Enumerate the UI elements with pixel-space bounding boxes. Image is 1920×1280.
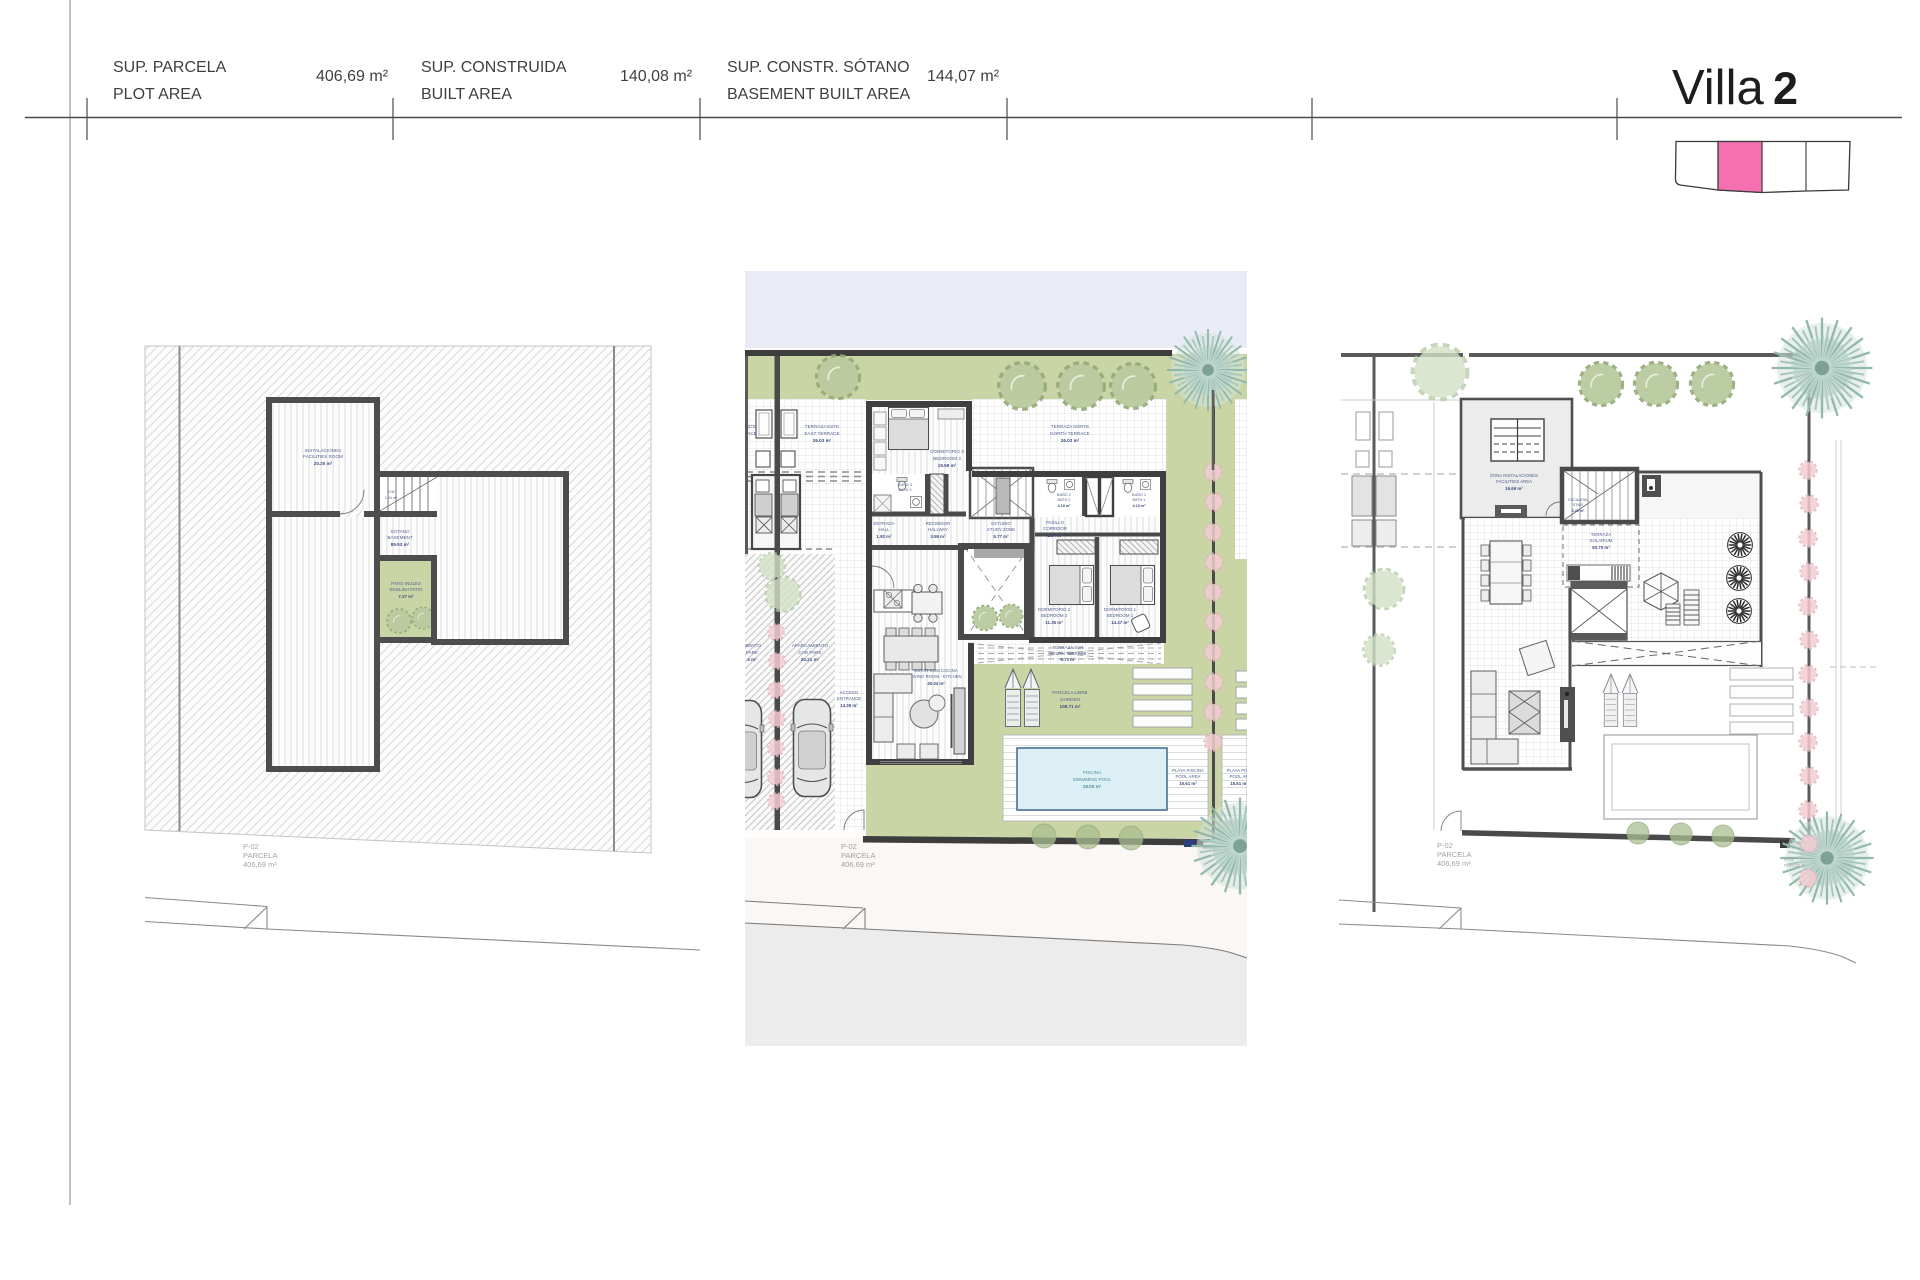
svg-text:ESCALERA: ESCALERA xyxy=(1568,498,1588,502)
svg-text:PATIO INGLES: PATIO INGLES xyxy=(391,581,421,586)
svg-text:DORMITORIO 1: DORMITORIO 1 xyxy=(1104,607,1137,612)
svg-text:P-02: P-02 xyxy=(243,842,259,851)
svg-text:11.35 m²: 11.35 m² xyxy=(1045,620,1063,625)
svg-text:Villa: Villa xyxy=(1672,61,1764,115)
svg-text:15.61 m²: 15.61 m² xyxy=(1179,781,1197,786)
svg-text:20.21 m²: 20.21 m² xyxy=(801,657,820,662)
svg-text:26.03 m²: 26.03 m² xyxy=(813,438,832,443)
svg-text:BEDROOM 2: BEDROOM 2 xyxy=(1041,613,1068,618)
svg-text:SUP. PARCELA: SUP. PARCELA xyxy=(113,59,227,76)
svg-text:ENTRADA: ENTRADA xyxy=(874,521,895,526)
svg-text:1.92 m²: 1.92 m² xyxy=(876,534,892,539)
svg-text:14.47 m²: 14.47 m² xyxy=(1111,620,1129,625)
svg-text:SUP. CONSTRUIDA: SUP. CONSTRUIDA xyxy=(421,59,567,76)
svg-text:STAIR: STAIR xyxy=(1573,503,1584,507)
svg-text:ESTAR-COM.COCINA: ESTAR-COM.COCINA xyxy=(914,668,958,673)
svg-text:APARCAMIENTO: APARCAMIENTO xyxy=(792,643,829,648)
svg-text:140,08 m²: 140,08 m² xyxy=(620,68,693,85)
svg-text:HALLWAY: HALLWAY xyxy=(928,527,948,532)
svg-text:PARCELA: PARCELA xyxy=(841,851,875,860)
svg-text:26.02 m²: 26.02 m² xyxy=(1061,438,1080,443)
svg-text:7.27 m²: 7.27 m² xyxy=(398,594,414,599)
svg-text:BAÑO 2: BAÑO 2 xyxy=(1057,492,1071,497)
svg-text:INSTALACIONES: INSTALACIONES xyxy=(305,448,341,453)
svg-text:POOL AREA: POOL AREA xyxy=(1176,774,1201,779)
svg-text:CORRIDOR: CORRIDOR xyxy=(1043,526,1067,531)
svg-text:PARCELA LIBRE: PARCELA LIBRE xyxy=(1052,690,1087,695)
svg-text:PARCELA: PARCELA xyxy=(1784,863,1805,868)
svg-text:TERRAZA ESTE: TERRAZA ESTE xyxy=(805,424,839,429)
svg-text:P-02: P-02 xyxy=(841,842,857,851)
svg-text:TERRAZA: TERRAZA xyxy=(1591,532,1612,537)
svg-text:40.04 m²: 40.04 m² xyxy=(927,681,945,686)
svg-text:18.00 m²: 18.00 m² xyxy=(1083,784,1102,789)
svg-text:3.59 m²: 3.59 m² xyxy=(930,534,946,539)
svg-text:SOTANO: SOTANO xyxy=(390,529,409,534)
svg-text:3.20 m²: 3.20 m² xyxy=(1572,509,1585,513)
svg-text:406,69 m²: 406,69 m² xyxy=(316,68,389,85)
svg-text:ESTUDIO: ESTUDIO xyxy=(991,521,1011,526)
svg-text:SUP. CONSTR. SÓTANO: SUP. CONSTR. SÓTANO xyxy=(727,57,910,76)
svg-text:BEDROOM 1: BEDROOM 1 xyxy=(1107,613,1134,618)
svg-text:BAÑO 3: BAÑO 3 xyxy=(898,482,912,487)
svg-text:4.18 m²: 4.18 m² xyxy=(1057,504,1071,508)
svg-text:TERRAZA NORTE: TERRAZA NORTE xyxy=(1051,424,1089,429)
svg-text:FACILITIES AREA: FACILITIES AREA xyxy=(1496,479,1532,484)
svg-text:ENTRANCE: ENTRANCE xyxy=(837,696,861,701)
svg-text:BATH 3: BATH 3 xyxy=(898,488,911,492)
svg-text:POOL AR: POOL AR xyxy=(1229,774,1248,779)
svg-text:ZTE: ZTE xyxy=(748,424,757,429)
svg-text:406,69 m²: 406,69 m² xyxy=(1437,859,1471,868)
svg-text:4 m²: 4 m² xyxy=(747,657,757,662)
svg-text:P-02: P-02 xyxy=(1437,841,1453,850)
svg-text:PASILLO: PASILLO xyxy=(1046,520,1065,525)
svg-text:2: 2 xyxy=(1773,63,1798,114)
svg-text:BAÑO 1: BAÑO 1 xyxy=(1132,492,1146,497)
svg-text:144,07 m²: 144,07 m² xyxy=(927,68,1000,85)
svg-text:BUILT AREA: BUILT AREA xyxy=(421,86,512,103)
svg-text:EAST TERRACE: EAST TERRACE xyxy=(804,431,839,436)
svg-text:BATH 1: BATH 1 xyxy=(1132,498,1145,502)
svg-text:P-03: P-03 xyxy=(1784,857,1794,862)
svg-text:HALL: HALL xyxy=(879,527,891,532)
svg-text:SWIMMING POOL: SWIMMING POOL xyxy=(1073,777,1112,782)
svg-text:89.93 m²: 89.93 m² xyxy=(391,542,410,547)
svg-text:ENGLISH PATIO: ENGLISH PATIO xyxy=(389,587,423,592)
svg-text:93.70 m²: 93.70 m² xyxy=(1592,545,1610,550)
svg-text:BASEMENT BUILT AREA: BASEMENT BUILT AREA xyxy=(727,86,911,103)
svg-text:ACE: ACE xyxy=(747,431,756,436)
svg-text:BASEMENT: BASEMENT xyxy=(387,535,412,540)
svg-text:BATH 2: BATH 2 xyxy=(1057,498,1070,502)
svg-text:16.69 m²: 16.69 m² xyxy=(1505,486,1523,491)
svg-text:PLOT AREA: PLOT AREA xyxy=(113,86,202,103)
svg-text:15.61 m²: 15.61 m² xyxy=(1230,781,1248,786)
svg-text:108.71 m²: 108.71 m² xyxy=(1060,704,1081,709)
svg-text:RECIBIDOR: RECIBIDOR xyxy=(926,521,950,526)
svg-text:PISCINA: PISCINA xyxy=(1083,770,1102,775)
svg-text:1.04 m²: 1.04 m² xyxy=(385,496,398,500)
svg-text:NORTH TERRACE: NORTH TERRACE xyxy=(1050,431,1089,436)
svg-text:9.71 m²: 9.71 m² xyxy=(1060,657,1076,662)
svg-text:TERRAZA SUR: TERRAZA SUR xyxy=(1053,645,1084,650)
svg-text:5.77 m²: 5.77 m² xyxy=(993,534,1009,539)
svg-text:GARDEN: GARDEN xyxy=(1060,697,1080,702)
svg-text:SOUTH TERRACE: SOUTH TERRACE xyxy=(1049,651,1087,656)
svg-text:DORMITORIO 2: DORMITORIO 2 xyxy=(1038,607,1071,612)
svg-text:3.08: 3.08 xyxy=(388,490,395,494)
svg-text:DORMITORIO 3: DORMITORIO 3 xyxy=(930,449,964,454)
svg-text:PARK: PARK xyxy=(746,650,759,655)
svg-text:1.94 m²: 1.94 m² xyxy=(1047,533,1063,538)
svg-text:FACILITIES ROOM: FACILITIES ROOM xyxy=(303,454,343,459)
svg-text:ACCESO: ACCESO xyxy=(840,690,859,695)
svg-text:406,69 m²: 406,69 m² xyxy=(841,860,875,869)
svg-text:CAR PARK: CAR PARK xyxy=(798,650,822,655)
svg-text:15.59 m²: 15.59 m² xyxy=(938,463,957,468)
svg-text:PARCELA: PARCELA xyxy=(243,851,277,860)
svg-text:LIVING ROOM - KITCHEN: LIVING ROOM - KITCHEN xyxy=(910,674,961,679)
svg-text:ZONA INSTALACIONES: ZONA INSTALACIONES xyxy=(1490,473,1538,478)
svg-text:PLAYA PISCINA: PLAYA PISCINA xyxy=(1172,768,1204,773)
svg-text:14.36 m²: 14.36 m² xyxy=(840,703,858,708)
svg-text:MIENTO: MIENTO xyxy=(743,643,761,648)
svg-text:SOLARIUM: SOLARIUM xyxy=(1590,538,1613,543)
svg-text:4.19 m²: 4.19 m² xyxy=(1132,504,1146,508)
svg-text:20.20 m²: 20.20 m² xyxy=(314,461,333,466)
svg-text:STUDY ZONE: STUDY ZONE xyxy=(987,527,1015,532)
svg-text:PARCELA: PARCELA xyxy=(1437,850,1471,859)
svg-text:BEDROOM 3: BEDROOM 3 xyxy=(933,456,961,461)
svg-text:406,69 m²: 406,69 m² xyxy=(243,860,277,869)
